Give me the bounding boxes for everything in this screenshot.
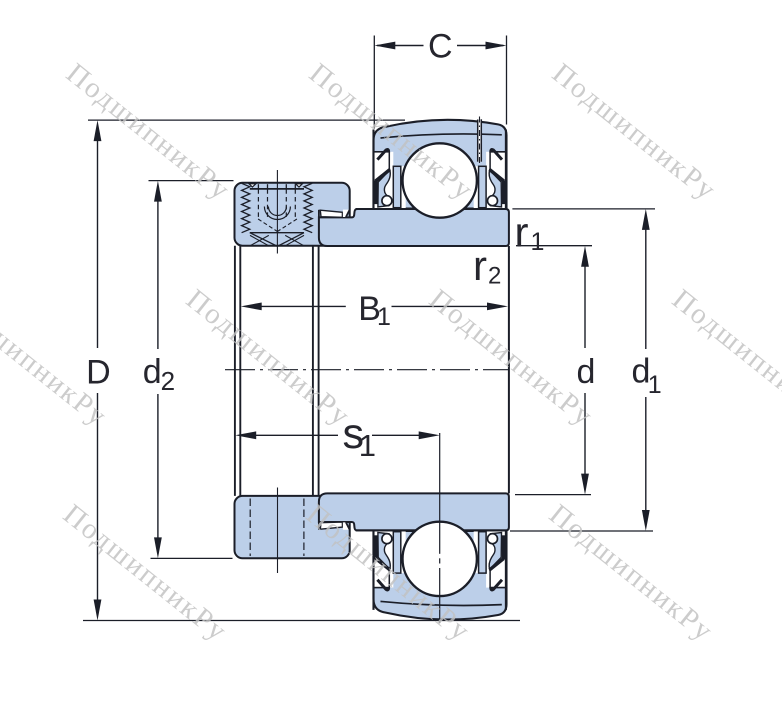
svg-text:1: 1 <box>531 228 545 256</box>
svg-text:r: r <box>473 242 487 289</box>
svg-text:r: r <box>515 208 529 255</box>
svg-text:d: d <box>143 353 162 391</box>
svg-text:D: D <box>86 354 111 392</box>
svg-text:1: 1 <box>377 303 391 331</box>
svg-text:1: 1 <box>648 371 662 399</box>
svg-text:2: 2 <box>488 263 501 290</box>
svg-text:C: C <box>428 27 453 65</box>
svg-text:2: 2 <box>161 366 175 396</box>
svg-text:1: 1 <box>359 428 376 463</box>
svg-text:d: d <box>577 353 596 391</box>
